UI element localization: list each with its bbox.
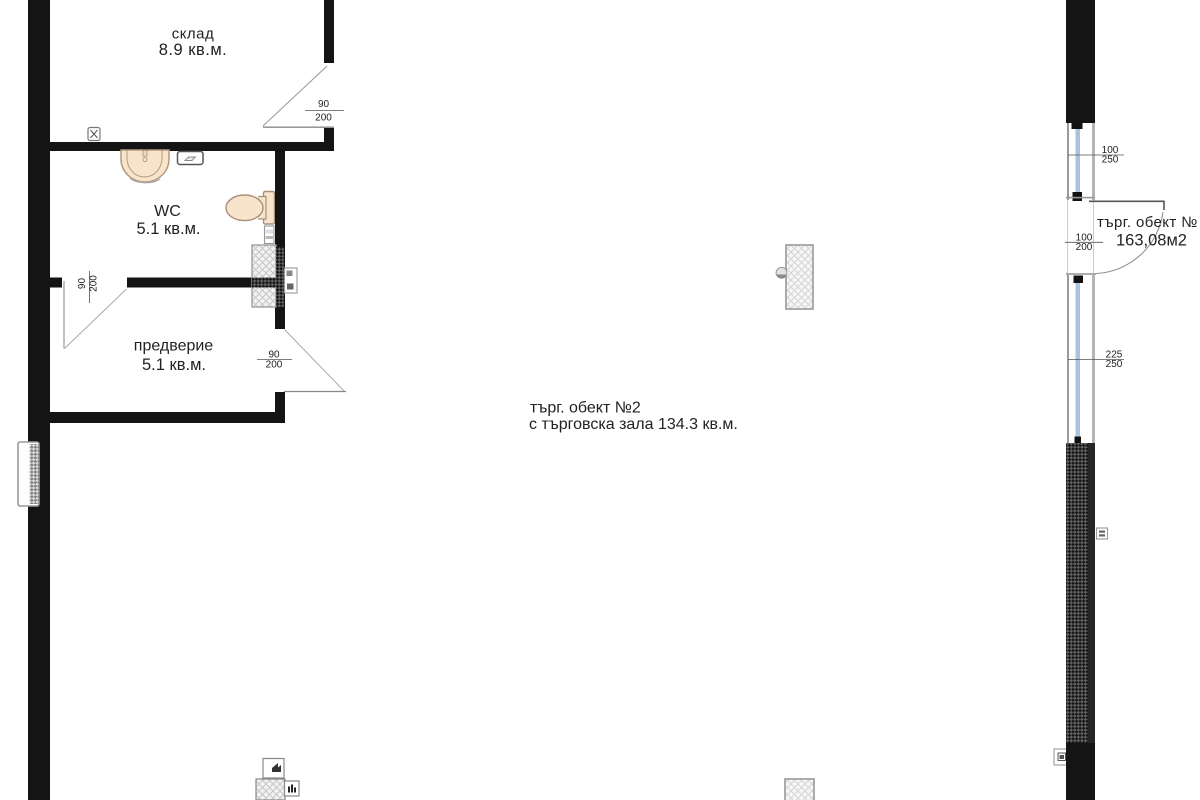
svg-text:търг. обект №: търг. обект №	[1097, 214, 1198, 231]
svg-text:WC: WC	[154, 203, 181, 220]
svg-text:163,08м2: 163,08м2	[1116, 232, 1187, 250]
svg-text:5.1 кв.м.: 5.1 кв.м.	[136, 220, 200, 238]
svg-text:търг. обект №2: търг. обект №2	[530, 400, 641, 417]
svg-text:5.1 кв.м.: 5.1 кв.м.	[142, 356, 206, 374]
svg-text:с търговска зала 134.3 кв.м.: с търговска зала 134.3 кв.м.	[529, 416, 738, 433]
svg-text:предверие: предверие	[134, 338, 214, 355]
svg-text:200: 200	[315, 113, 332, 124]
svg-text:200: 200	[266, 360, 283, 371]
svg-text:90: 90	[77, 278, 88, 290]
svg-text:200: 200	[1076, 242, 1093, 253]
svg-text:250: 250	[1106, 359, 1123, 370]
svg-text:250: 250	[1102, 155, 1119, 166]
svg-text:90: 90	[318, 99, 330, 110]
svg-text:200: 200	[89, 275, 100, 292]
svg-text:8.9 кв.м.: 8.9 кв.м.	[159, 41, 228, 59]
